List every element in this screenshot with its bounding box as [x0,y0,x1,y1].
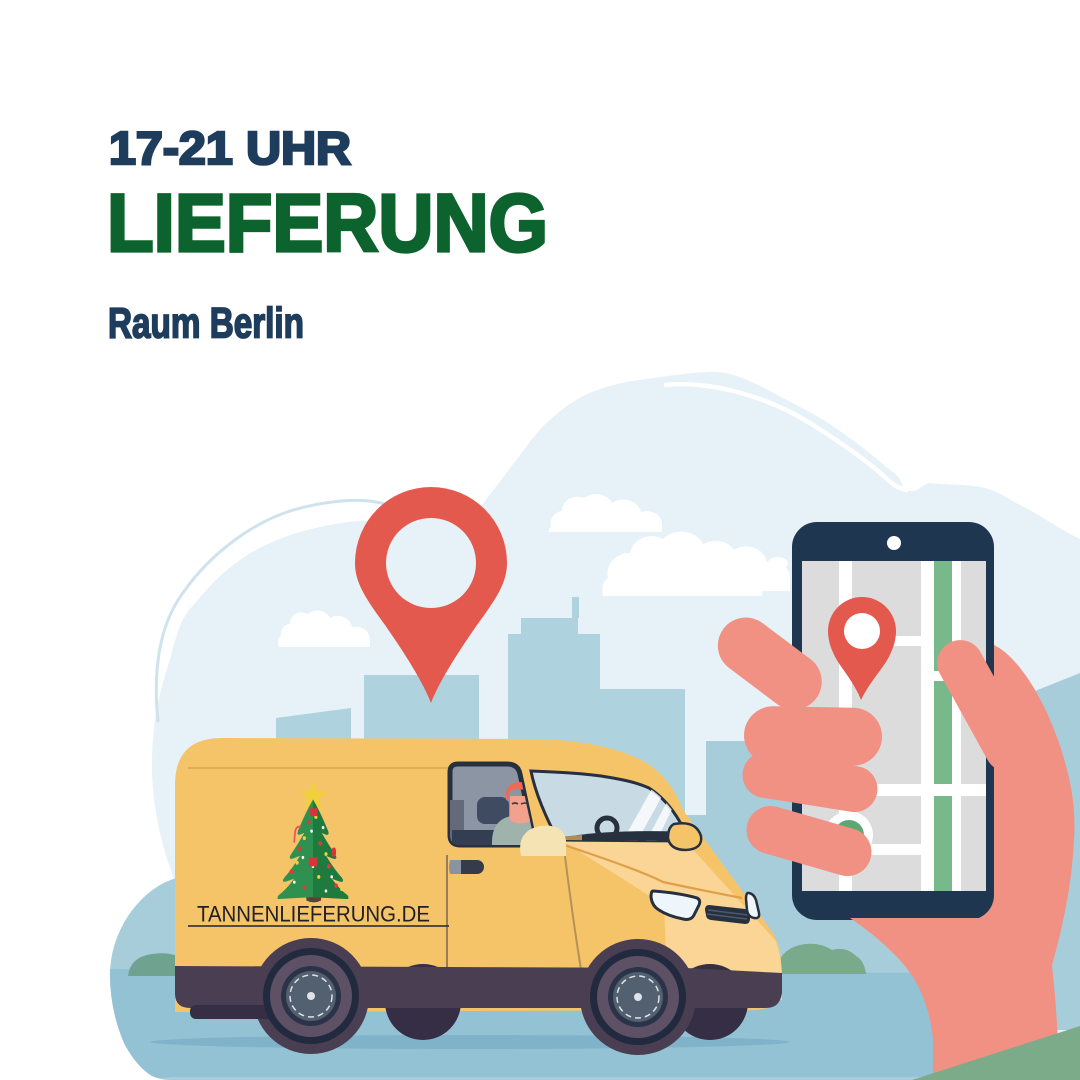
svg-text:Raum Berlin: Raum Berlin [108,300,304,348]
svg-text:TANNENLIEFERUNG.DE: TANNENLIEFERUNG.DE [197,902,430,927]
svg-text:17-21 UHR: 17-21 UHR [109,122,351,174]
svg-text:LIEFERUNG: LIEFERUNG [107,178,548,269]
